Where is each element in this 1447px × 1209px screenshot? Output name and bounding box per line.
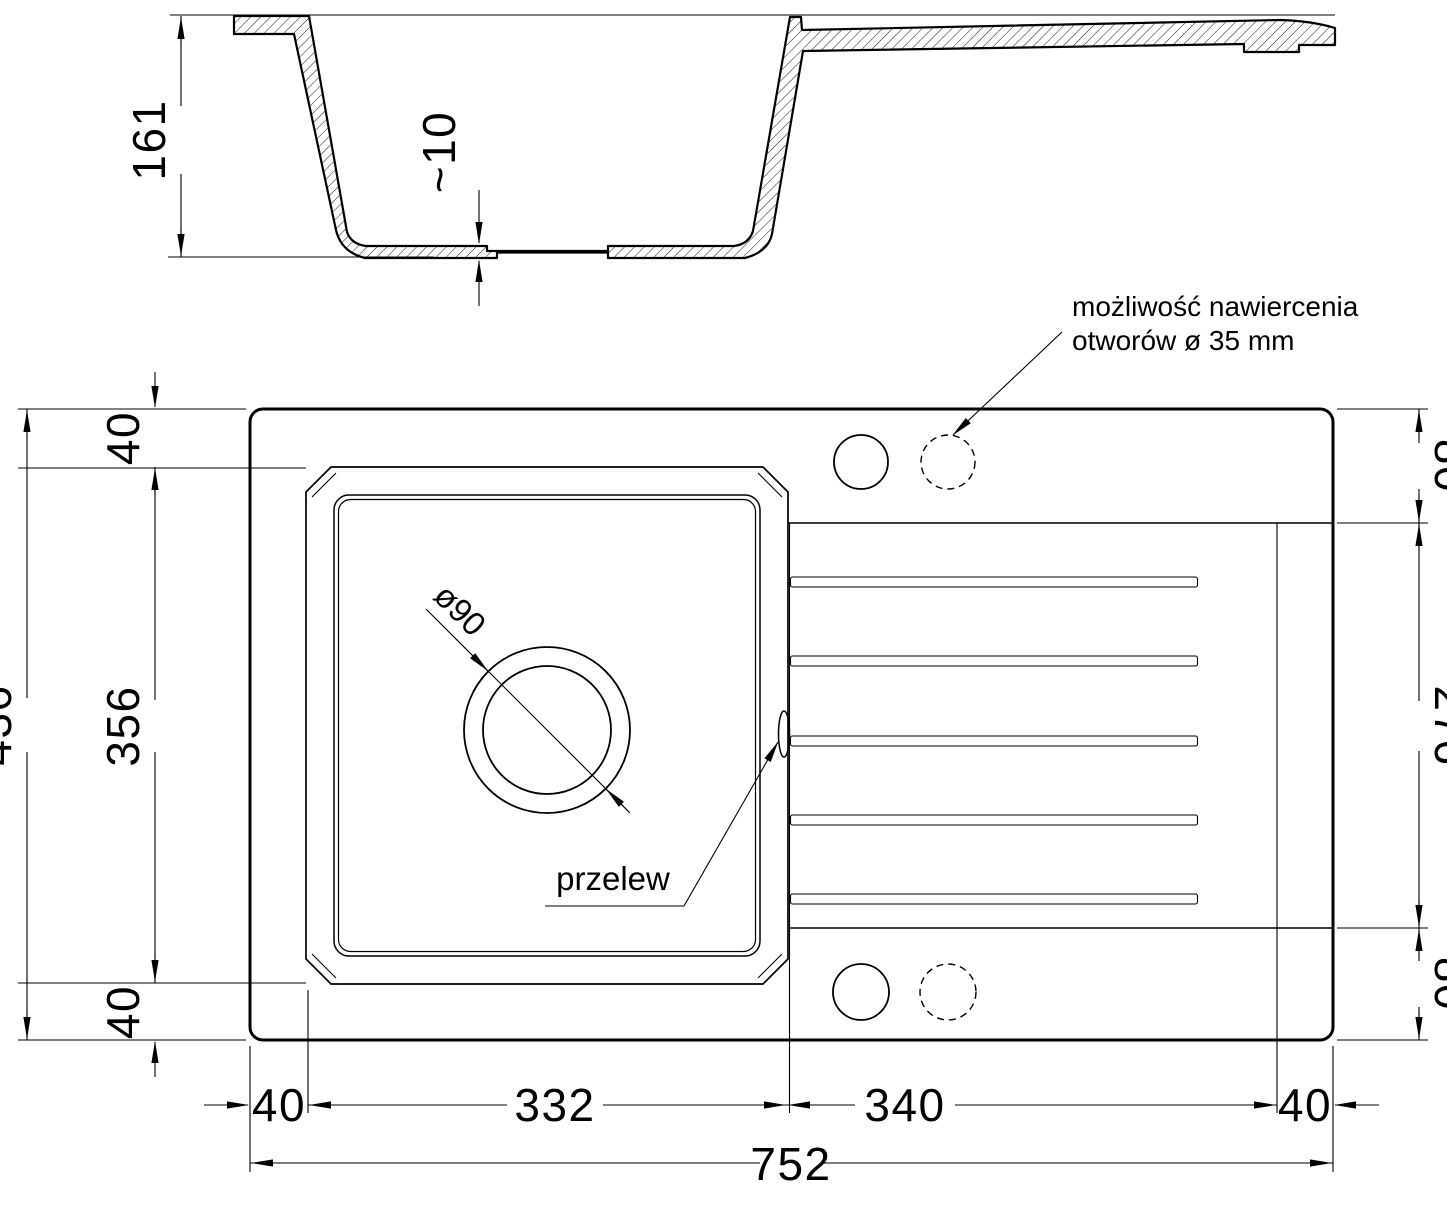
dim-overall-height: 436 [0,409,27,1040]
plan-view: ø90 przelew możliwość nawiercenia otworó… [250,291,1359,1113]
groove-3 [791,736,1198,746]
drill-note-line2: otworów ø 35 mm [1072,325,1295,356]
groove-4 [791,815,1198,825]
bowl-inner-edge-inner [339,500,756,952]
dim-label-332: 332 [514,1079,595,1131]
cross-section-view: 161 ~10 [123,15,1335,306]
drill-note: możliwość nawiercenia otworów ø 35 mm [953,291,1359,435]
dim-label-80-bottom: 80 [1425,957,1447,1011]
drill-note-line1: możliwość nawiercenia [1072,291,1359,322]
dim-label-40-bottom: 40 [97,985,149,1039]
overflow-label: przelew [556,860,670,897]
dim-label-276: 276 [1425,685,1447,766]
drain-diameter-label: ø90 [427,577,493,643]
optional-hole-top [921,435,975,489]
dim-label-340: 340 [864,1079,945,1131]
dim-label-752: 752 [750,1138,831,1190]
section-material-profile [234,16,1335,258]
groove-2 [791,656,1198,666]
groove-1 [791,577,1198,587]
tap-hole-bottom [833,964,889,1020]
dim-label-10: ~10 [413,111,465,194]
dim-label-40-left: 40 [252,1079,306,1131]
dim-label-80-top: 80 [1425,439,1447,493]
sink-outline [250,409,1333,1040]
bowl-chamfer-bottom-left [312,954,336,978]
drainer-grooves [791,577,1198,904]
dim-label-436: 436 [0,684,21,765]
dim-section-depth: 161 [123,16,181,257]
dim-label-356: 356 [97,685,149,766]
dim-right-chain: 80 276 80 [1419,409,1447,1040]
dim-left-chain: 40 356 40 [97,372,155,1077]
tap-hole-top [834,435,888,489]
bowl-inner-edge-outer [334,495,760,956]
dim-bottom-chain: 40 332 340 40 [204,1079,1379,1131]
bowl-chamfer-top-right [758,473,782,497]
bowl-chamfer-top-left [312,473,336,497]
groove-5 [791,894,1198,904]
dim-overall-width: 752 [250,1138,1333,1190]
sink-technical-drawing: 161 ~10 [0,0,1447,1209]
bowl-chamfer-bottom-right [758,954,782,978]
dim-label-161: 161 [123,99,175,180]
dim-label-40-right: 40 [1278,1079,1332,1131]
drawing-canvas: 161 ~10 [0,0,1447,1209]
overflow-callout: przelew [545,742,778,906]
optional-hole-bottom [920,964,976,1020]
dim-bottom-thickness: ~10 [413,111,479,306]
dim-label-40-top: 40 [97,411,149,465]
